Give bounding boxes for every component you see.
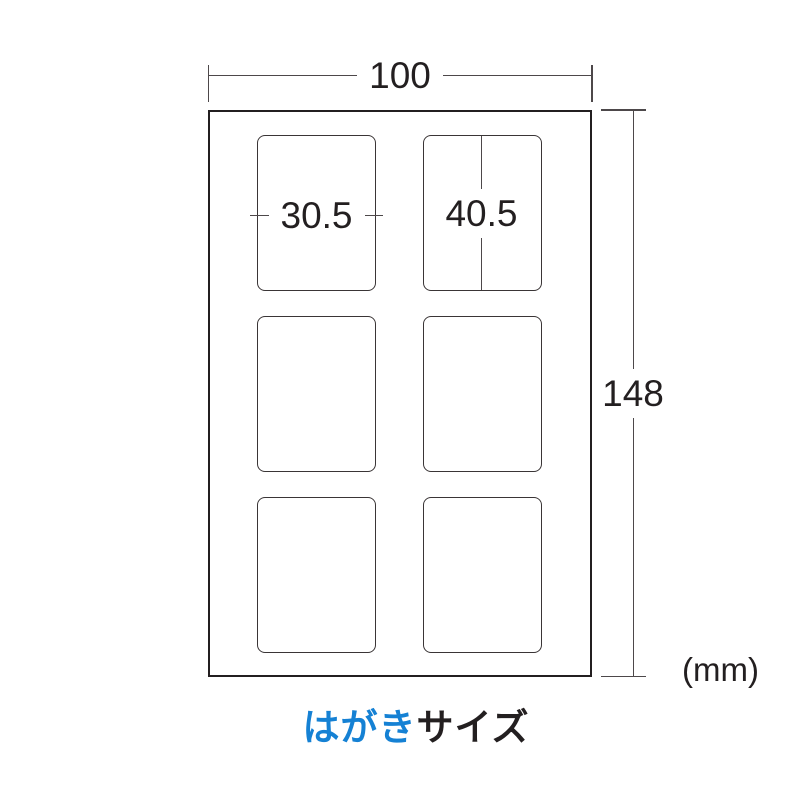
label-cell [423, 497, 542, 653]
sheet-height-value: 148 [602, 375, 664, 412]
sheet-width-value: 100 [369, 57, 431, 94]
label-height-dimension-line: 40.5 [445, 136, 518, 290]
label-cell [423, 316, 542, 472]
caption: はがきサイズ [303, 708, 530, 749]
label-sheet-diagram: 100 148 30.5 40.5 (mm) はがきサイズ [0, 0, 800, 800]
caption-highlight: はがき [303, 707, 417, 748]
unit-label: (mm) [682, 650, 759, 690]
caption-rest: サイズ [417, 707, 530, 748]
label-cell [257, 497, 376, 653]
label-width-dimension-line: 30.5 [250, 196, 383, 234]
label-height-value: 40.5 [445, 195, 517, 232]
label-width-value: 30.5 [281, 197, 353, 234]
label-cell [257, 316, 376, 472]
height-dimension-line: 148 [598, 110, 668, 677]
width-dimension-line: 100 [208, 56, 592, 94]
